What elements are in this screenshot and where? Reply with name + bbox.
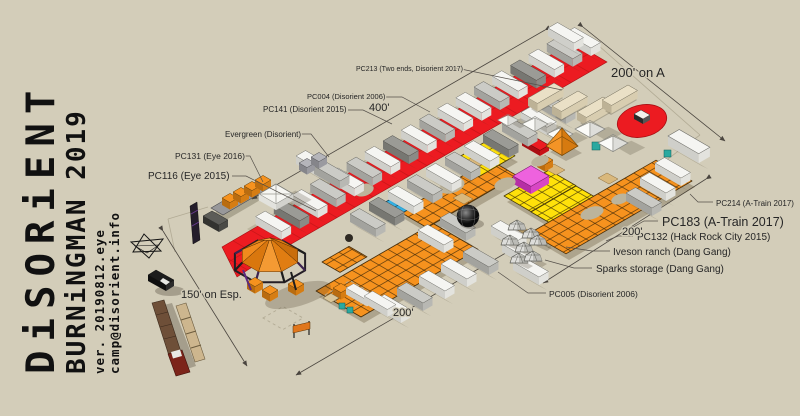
dim-200-on-a: 200' on A bbox=[611, 65, 665, 80]
masthead: DiSORiENT BURNiNGMAN 2019 ver. 20190812.… bbox=[22, 82, 121, 374]
label-pc213: PC213 (Two ends, Disorient 2017) bbox=[356, 66, 463, 73]
esp-trucks bbox=[152, 300, 205, 376]
label-pc131: PC131 (Eye 2016) bbox=[175, 151, 245, 161]
version-text: ver. 20190812.eye bbox=[94, 82, 107, 374]
site-plan-image: PC213 (Two ends, Disorient 2017) PC004 (… bbox=[0, 0, 800, 416]
label-pc004: PC004 (Disorient 2006) bbox=[307, 92, 386, 101]
sign-banner bbox=[293, 321, 310, 338]
dome-tower bbox=[235, 238, 334, 315]
label-pc214: PC214 (A-Train 2017) bbox=[716, 199, 794, 208]
camp-title: DiSORiENT bbox=[22, 82, 61, 374]
label-evergreen: Evergreen (Disorient) bbox=[225, 130, 301, 139]
dim-150-esp: 150' on Esp. bbox=[181, 289, 242, 301]
scaffold-tower-thin bbox=[190, 202, 200, 244]
label-pc116: PC116 (Eye 2015) bbox=[148, 171, 230, 182]
dim-400: 400' bbox=[369, 102, 389, 114]
label-pc141: PC141 (Disorient 2015) bbox=[263, 105, 347, 114]
star-structure bbox=[131, 234, 163, 258]
dim-200-south: 200' bbox=[393, 307, 413, 319]
dim-200-se: 200' bbox=[622, 226, 642, 238]
label-iveson: Iveson ranch (Dang Gang) bbox=[613, 247, 731, 258]
label-sparks: Sparks storage (Dang Gang) bbox=[596, 264, 724, 275]
label-pc132: PC132 (Hack Rock City 2015) bbox=[637, 232, 770, 243]
label-pc005: PC005 (Disorient 2006) bbox=[549, 289, 638, 299]
disco-ball bbox=[457, 205, 484, 229]
camp-subtitle: BURNiNGMAN 2019 bbox=[64, 82, 90, 374]
black-car bbox=[148, 270, 185, 296]
rock bbox=[345, 234, 353, 242]
label-pc183: PC183 (A-Train 2017) bbox=[662, 215, 784, 229]
contact-email: camp@disorient.info bbox=[109, 82, 122, 374]
